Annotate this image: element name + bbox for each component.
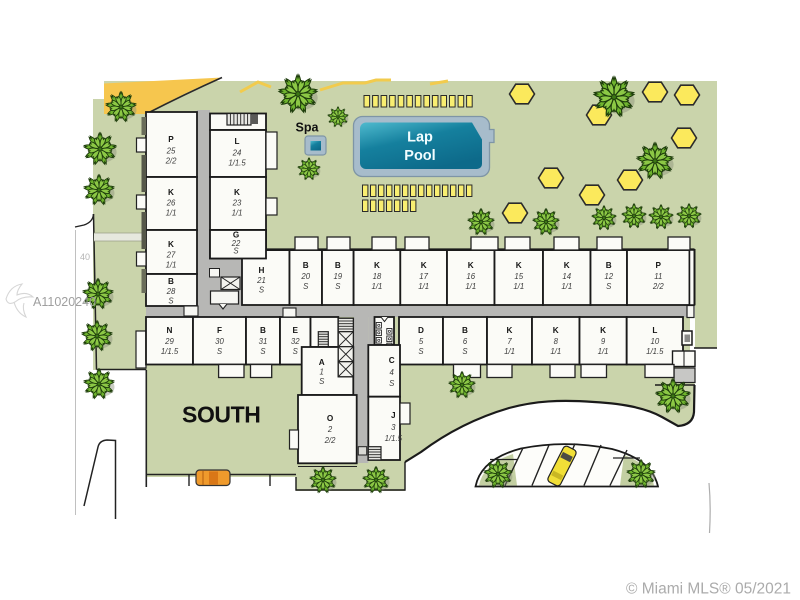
svg-text:26: 26 bbox=[166, 199, 176, 208]
svg-text:A: A bbox=[319, 358, 325, 367]
svg-text:K: K bbox=[168, 240, 174, 249]
svg-text:32: 32 bbox=[291, 337, 300, 346]
svg-text:1/1: 1/1 bbox=[561, 282, 572, 291]
svg-text:29: 29 bbox=[164, 337, 174, 346]
svg-text:S: S bbox=[389, 379, 395, 388]
svg-text:4: 4 bbox=[390, 368, 395, 377]
svg-text:B: B bbox=[606, 261, 612, 270]
svg-text:S: S bbox=[217, 347, 223, 356]
svg-text:Pool: Pool bbox=[404, 148, 435, 164]
svg-text:© Miami MLS® 05/2021: © Miami MLS® 05/2021 bbox=[626, 581, 791, 598]
svg-text:24: 24 bbox=[232, 149, 242, 158]
svg-text:12: 12 bbox=[604, 272, 613, 281]
svg-text:8: 8 bbox=[554, 337, 559, 346]
svg-text:19: 19 bbox=[333, 272, 342, 281]
svg-text:11: 11 bbox=[654, 272, 662, 281]
svg-text:1/1: 1/1 bbox=[598, 347, 609, 356]
svg-text:S: S bbox=[233, 247, 239, 256]
svg-text:K: K bbox=[564, 261, 570, 270]
svg-text:7: 7 bbox=[507, 337, 512, 346]
svg-text:25: 25 bbox=[166, 147, 176, 156]
svg-text:5: 5 bbox=[419, 337, 424, 346]
svg-text:14: 14 bbox=[562, 272, 571, 281]
svg-text:Spa: Spa bbox=[296, 121, 320, 135]
svg-text:16: 16 bbox=[466, 272, 475, 281]
svg-text:31: 31 bbox=[259, 337, 268, 346]
svg-text:2/2: 2/2 bbox=[652, 282, 665, 291]
svg-text:6: 6 bbox=[463, 337, 468, 346]
svg-text:A11020240: A11020240 bbox=[33, 295, 96, 309]
svg-text:1/1: 1/1 bbox=[166, 261, 177, 270]
svg-text:1/1: 1/1 bbox=[504, 347, 515, 356]
svg-text:C: C bbox=[389, 356, 395, 365]
svg-text:O: O bbox=[327, 414, 334, 423]
svg-text:18: 18 bbox=[373, 272, 382, 281]
svg-text:L: L bbox=[652, 326, 657, 335]
svg-text:K: K bbox=[234, 188, 240, 197]
svg-text:2/2: 2/2 bbox=[324, 436, 337, 445]
svg-text:B: B bbox=[462, 326, 468, 335]
svg-text:K: K bbox=[468, 261, 474, 270]
svg-text:1/1: 1/1 bbox=[550, 347, 561, 356]
svg-text:J: J bbox=[391, 411, 396, 420]
svg-text:1/1.5: 1/1.5 bbox=[228, 159, 246, 168]
svg-text:17: 17 bbox=[419, 272, 428, 281]
svg-text:S: S bbox=[606, 282, 612, 291]
svg-text:K: K bbox=[516, 261, 522, 270]
svg-text:1/1: 1/1 bbox=[166, 209, 177, 218]
svg-text:S: S bbox=[168, 297, 174, 306]
svg-text:K: K bbox=[168, 188, 174, 197]
svg-text:B: B bbox=[260, 326, 266, 335]
svg-text:S: S bbox=[260, 347, 266, 356]
svg-text:Lap: Lap bbox=[407, 130, 433, 146]
svg-text:D: D bbox=[418, 326, 424, 335]
svg-text:K: K bbox=[553, 326, 559, 335]
svg-text:1/1: 1/1 bbox=[372, 282, 383, 291]
svg-text:E: E bbox=[293, 326, 299, 335]
svg-text:P: P bbox=[656, 261, 662, 270]
svg-text:28: 28 bbox=[166, 287, 176, 296]
svg-text:P: P bbox=[168, 135, 174, 144]
svg-text:S: S bbox=[303, 282, 309, 291]
svg-text:S: S bbox=[418, 347, 424, 356]
svg-text:B: B bbox=[335, 261, 341, 270]
svg-text:K: K bbox=[421, 261, 427, 270]
svg-text:S: S bbox=[293, 347, 299, 356]
svg-text:H: H bbox=[259, 266, 265, 275]
svg-text:15: 15 bbox=[514, 272, 523, 281]
svg-text:1/1.5: 1/1.5 bbox=[161, 347, 179, 356]
svg-text:N: N bbox=[167, 326, 173, 335]
svg-text:1/1: 1/1 bbox=[232, 209, 243, 218]
svg-text:27: 27 bbox=[166, 251, 176, 260]
svg-text:1/1.5: 1/1.5 bbox=[385, 434, 403, 443]
svg-text:9: 9 bbox=[601, 337, 606, 346]
svg-text:3: 3 bbox=[391, 423, 396, 432]
svg-text:23: 23 bbox=[232, 199, 242, 208]
svg-text:20: 20 bbox=[300, 272, 310, 281]
svg-text:10: 10 bbox=[651, 337, 660, 346]
svg-text:L: L bbox=[234, 137, 239, 146]
svg-text:S: S bbox=[319, 377, 325, 386]
svg-text:40: 40 bbox=[80, 252, 90, 262]
svg-text:1/1: 1/1 bbox=[418, 282, 429, 291]
svg-text:S: S bbox=[462, 347, 468, 356]
svg-text:21: 21 bbox=[256, 276, 266, 285]
svg-text:K: K bbox=[600, 326, 606, 335]
svg-text:1/1.5: 1/1.5 bbox=[646, 347, 664, 356]
svg-text:SOUTH: SOUTH bbox=[182, 402, 261, 428]
svg-text:K: K bbox=[507, 326, 513, 335]
svg-text:1/1: 1/1 bbox=[465, 282, 476, 291]
svg-text:S: S bbox=[335, 282, 341, 291]
svg-text:F: F bbox=[217, 326, 222, 335]
svg-text:1/1: 1/1 bbox=[513, 282, 524, 291]
svg-text:1: 1 bbox=[320, 368, 324, 377]
svg-text:30: 30 bbox=[215, 337, 224, 346]
svg-text:2: 2 bbox=[327, 425, 333, 434]
svg-text:B: B bbox=[168, 277, 174, 286]
svg-text:B: B bbox=[303, 261, 309, 270]
svg-text:K: K bbox=[374, 261, 380, 270]
svg-text:S: S bbox=[259, 286, 265, 295]
svg-text:2/2: 2/2 bbox=[165, 157, 178, 166]
